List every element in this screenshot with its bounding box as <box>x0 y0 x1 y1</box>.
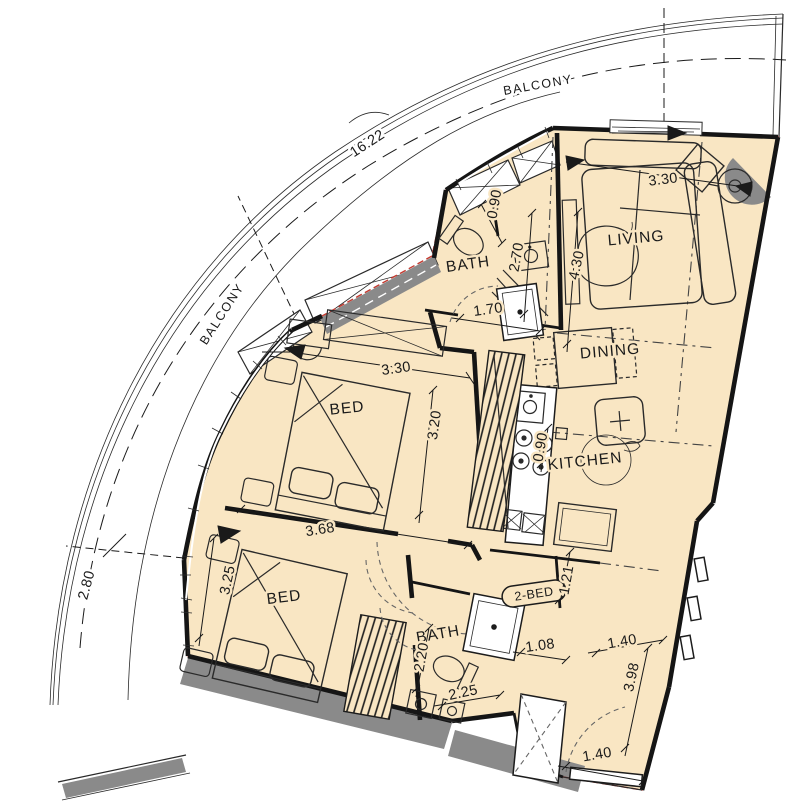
balcony-dim-tick <box>103 534 126 557</box>
shaft <box>513 694 566 783</box>
dim-balcony-width: 2.80 <box>75 569 98 602</box>
arc-length-symbol <box>349 112 389 123</box>
floor-plan-sheet: BALCONY BALCONY 16.22 2.80 <box>0 0 795 810</box>
floor-plan-drawing: BALCONY BALCONY 16.22 2.80 <box>0 0 795 810</box>
balcony-end-cap-right <box>773 14 783 137</box>
ext-line-left <box>238 196 296 318</box>
dim-balcony-length: 16.22 <box>347 127 387 161</box>
balcony-end-cap-left <box>58 755 190 800</box>
ext-line-280 <box>66 546 184 558</box>
room-label-bed-upper: BED <box>329 398 365 419</box>
shower-upper <box>497 283 544 340</box>
balcony-label-upper: BALCONY <box>502 72 574 98</box>
apartment: LIVING DINING <box>179 120 778 792</box>
